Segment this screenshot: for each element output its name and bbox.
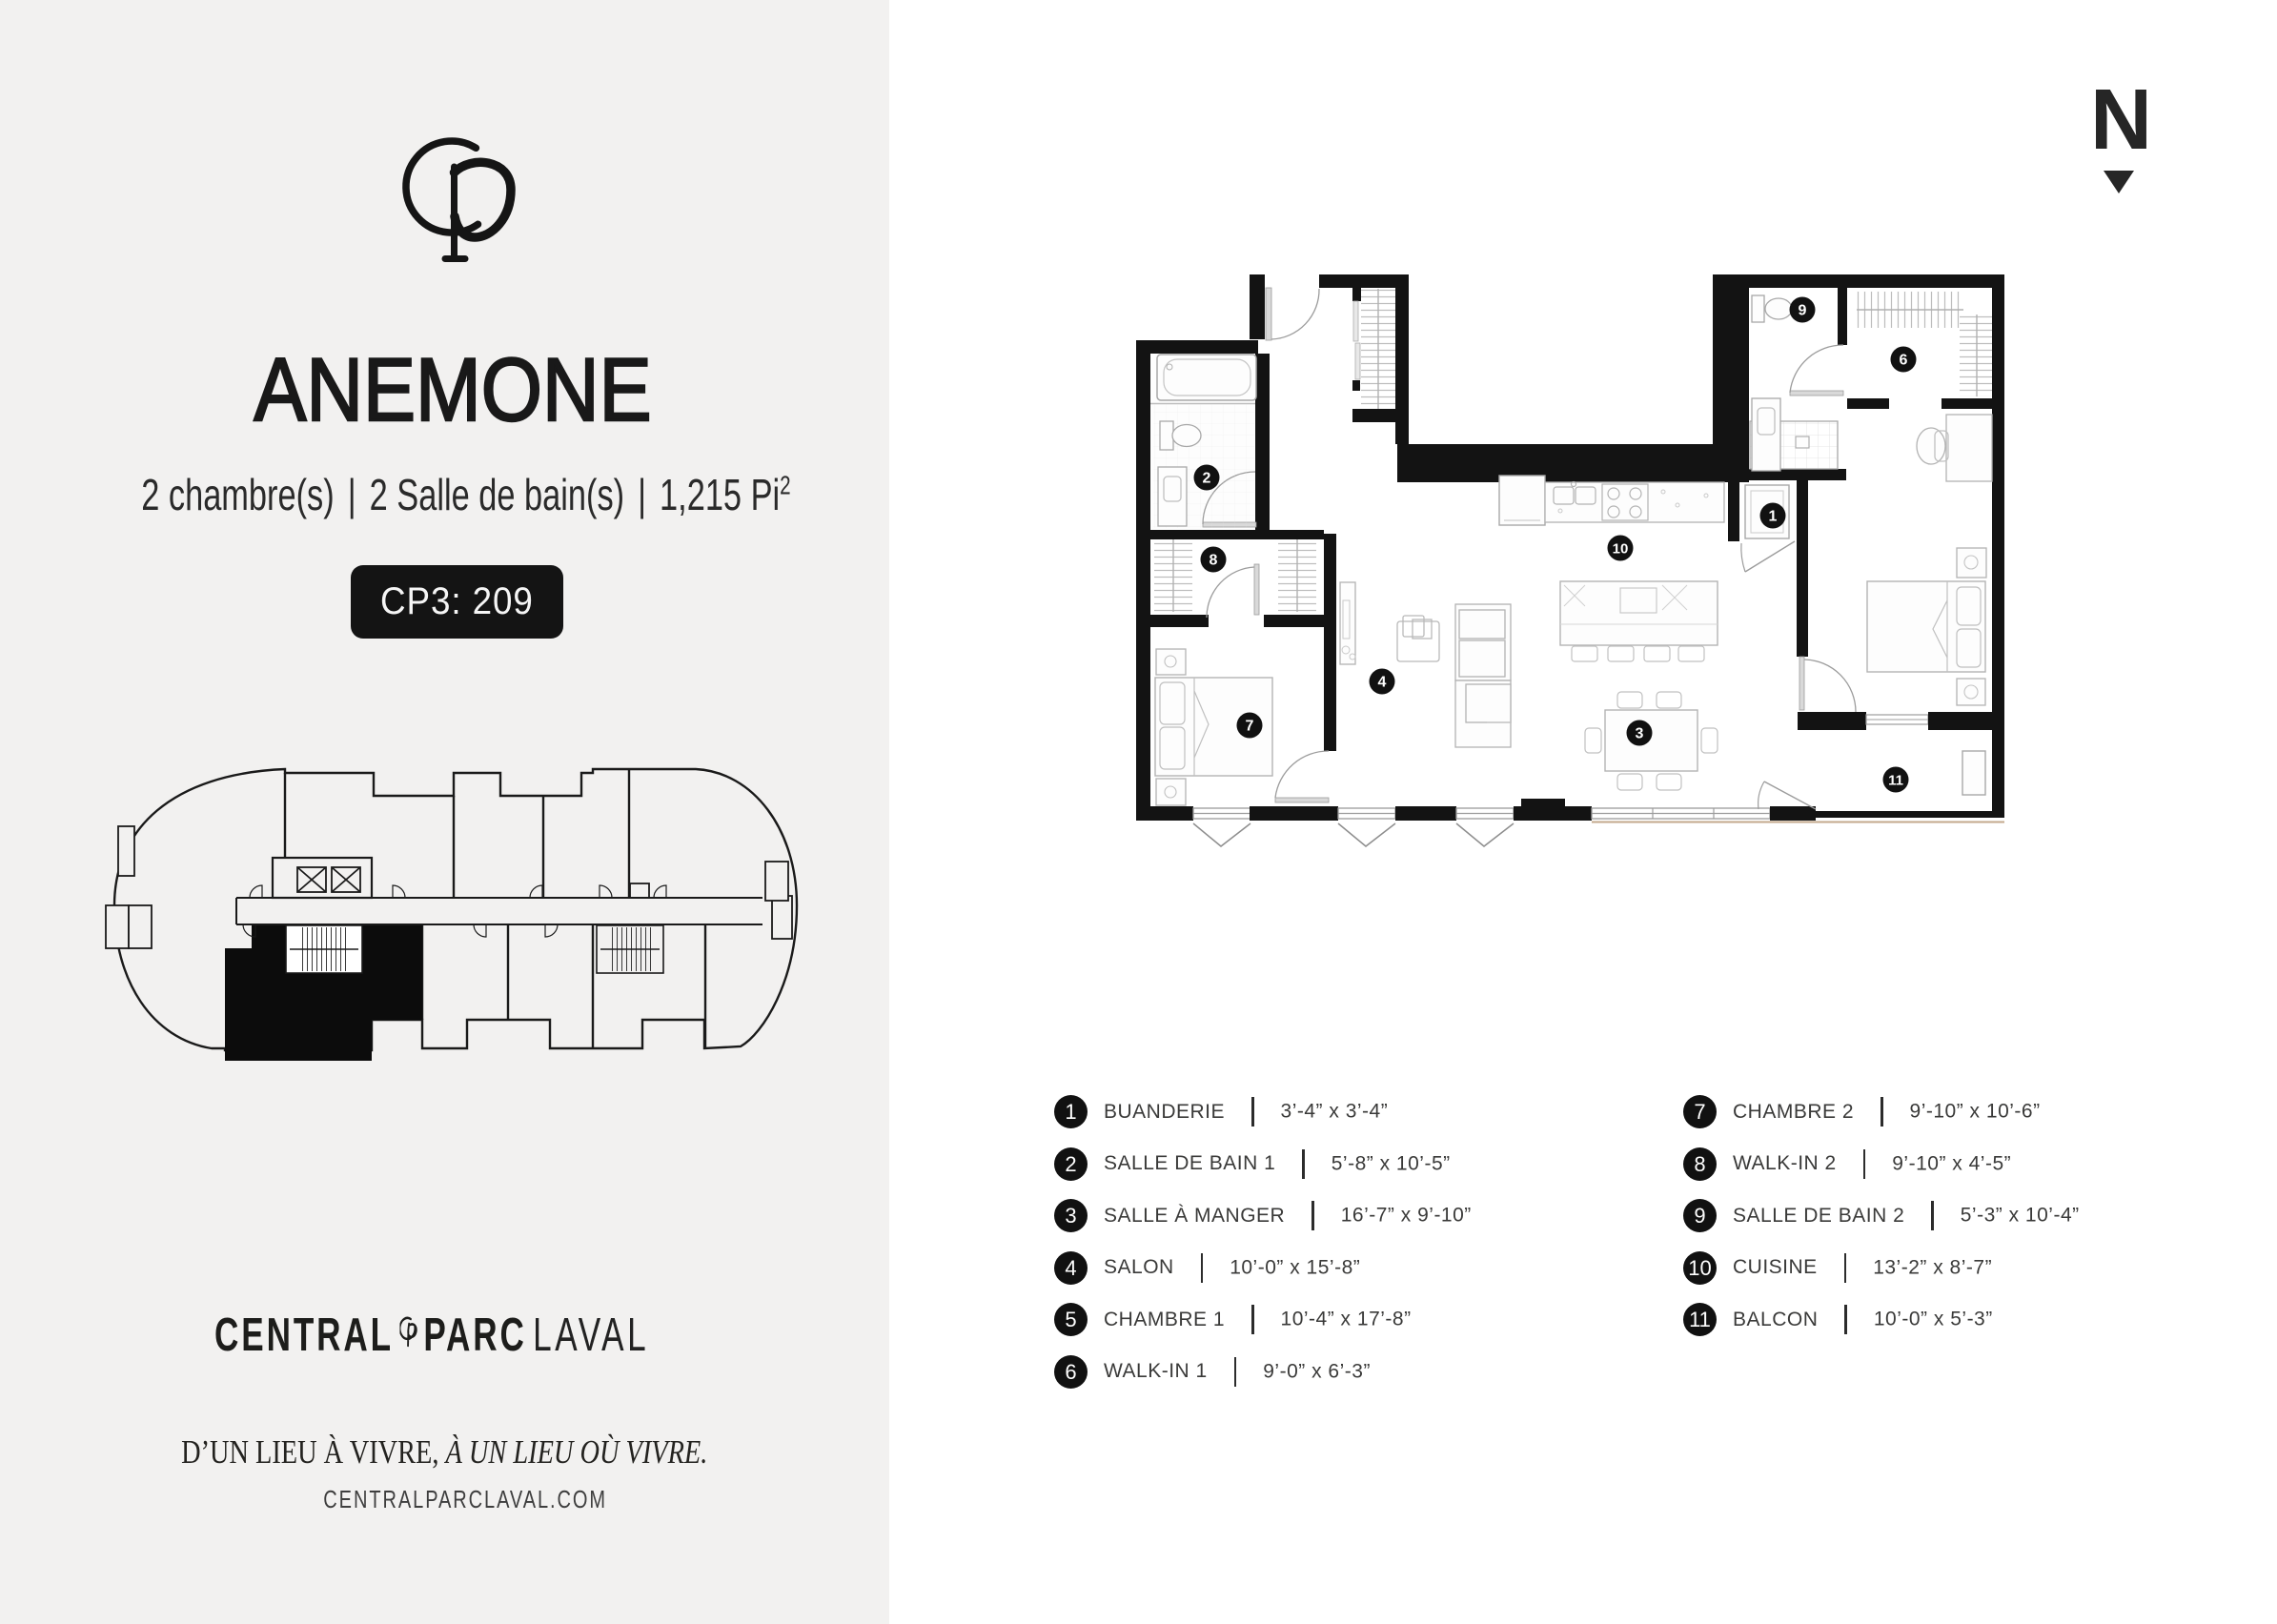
svg-text:6: 6 [1900, 353, 1908, 369]
svg-text:4: 4 [1378, 675, 1387, 691]
svg-text:9: 9 [1799, 303, 1807, 319]
svg-text:11: 11 [1888, 773, 1903, 789]
svg-text:3: 3 [1636, 726, 1644, 742]
svg-text:2: 2 [1203, 471, 1211, 487]
svg-text:1: 1 [1769, 509, 1778, 525]
svg-text:7: 7 [1246, 719, 1254, 735]
svg-text:8: 8 [1210, 553, 1218, 569]
svg-text:10: 10 [1613, 541, 1629, 558]
